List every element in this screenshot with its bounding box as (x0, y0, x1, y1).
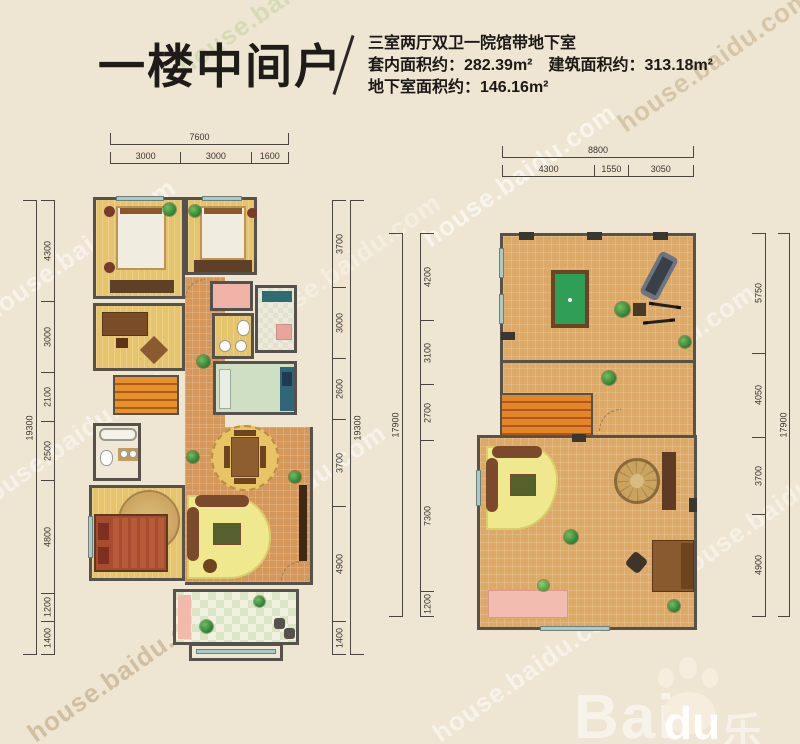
dim-right-segments-first-floor: 3700 3000 2600 3700 4900 1400 (332, 200, 346, 655)
column (689, 498, 697, 512)
dim-seg: 7600 (110, 133, 288, 145)
billiard-table (551, 270, 589, 328)
fridge (282, 372, 292, 386)
dim-seg: 19300 (23, 200, 37, 654)
dim-seg: 3700 (332, 200, 346, 287)
dim-left-overall-basement: 17900 (389, 233, 403, 617)
pillow (98, 547, 109, 564)
balcony (173, 589, 299, 645)
bookshelf (681, 543, 693, 589)
treadmill (639, 250, 679, 302)
sofa-back (195, 495, 249, 507)
sofa-back (486, 458, 498, 512)
plant-pot (633, 303, 646, 316)
dim-seg: 3700 (752, 437, 766, 514)
dim-left-segments-basement: 4200 3100 2700 7300 1200 (420, 233, 434, 617)
sink-icon (129, 450, 137, 458)
sofa-set (187, 495, 271, 579)
dining-table (231, 437, 259, 477)
study (93, 303, 185, 371)
bathroom-master (93, 423, 141, 481)
dim-seg: 4300 (41, 200, 55, 301)
billiard-ball (568, 298, 572, 302)
blanket (113, 518, 164, 568)
dim-left-segments-first-floor: 4300 3000 2100 2500 4800 1200 1400 (41, 200, 55, 655)
pillow (98, 523, 109, 540)
dim-seg: 1400 (332, 621, 346, 654)
dim-seg: 19300 (350, 200, 364, 654)
column (653, 232, 668, 240)
dim-left-overall-first-floor: 19300 (23, 200, 37, 655)
dim-seg: 1200 (41, 593, 55, 621)
column (519, 232, 534, 240)
washing-machine (276, 324, 292, 340)
desk (102, 312, 148, 336)
window (196, 649, 276, 654)
plant-icon (163, 203, 176, 216)
chair (274, 618, 285, 629)
page-title: 一楼中间户 (98, 28, 343, 97)
bathroom-pink (210, 281, 253, 311)
plant-icon (564, 530, 578, 544)
window (202, 196, 242, 201)
plant-icon (668, 600, 680, 612)
master-bed (94, 514, 168, 572)
master-bedroom (89, 485, 185, 581)
family-room (477, 435, 697, 630)
round-rug (614, 458, 660, 504)
dim-top-overall-basement: 8800 (502, 146, 694, 158)
plant-icon (254, 596, 265, 607)
cabinet (662, 452, 676, 510)
dim-right-overall-basement: 17900 (778, 233, 790, 617)
toilet-icon (237, 320, 250, 336)
dim-seg: 2500 (41, 421, 55, 480)
dresser (110, 280, 174, 293)
basement-plan (477, 233, 699, 630)
plant-icon (615, 302, 630, 317)
plant-icon (289, 471, 301, 483)
double-bed (116, 206, 166, 270)
dim-top-segments-basement: 4300 1550 3050 (502, 165, 694, 177)
desc-inner-area: 套内面积约：282.39m² (368, 57, 533, 74)
headboard (120, 208, 162, 214)
dim-seg: 2700 (420, 384, 434, 440)
dim-seg: 17900 (778, 233, 790, 616)
bay-window (189, 643, 283, 661)
kitchen-counter (219, 369, 231, 409)
nightstand (247, 208, 257, 218)
bathroom-tiled (255, 285, 297, 353)
dim-seg: 3000 (332, 287, 346, 358)
dim-seg: 2100 (41, 372, 55, 421)
dim-seg: 2600 (332, 358, 346, 419)
dim-seg: 8800 (502, 146, 693, 158)
dim-seg: 4900 (332, 506, 346, 621)
dim-seg: 1200 (420, 591, 434, 616)
dim-seg: 1400 (41, 621, 55, 654)
bathtub (99, 428, 137, 441)
desc-line-rooms: 三室两厅双卫一院馆带地下室 (368, 33, 713, 55)
sink-icon (120, 450, 128, 458)
plant-icon (200, 620, 213, 633)
desc-basement-area: 地下室面积约：146.16m² (368, 77, 713, 99)
barbell-icon (649, 302, 681, 309)
dim-seg: 3000 (41, 301, 55, 372)
plant-icon (189, 205, 201, 217)
unit-description: 三室两厅双卫一院馆带地下室 套内面积约：282.39m²建筑面积约：313.18… (368, 33, 713, 99)
dim-seg: 3100 (420, 320, 434, 384)
plant-icon (538, 580, 549, 591)
headboard (204, 208, 242, 214)
staircase (113, 375, 179, 415)
logo-leju-text: 乐居 (722, 700, 800, 744)
living-dining-room (185, 427, 313, 585)
floorplan-page: house.baidu.com house.baidu.com house.ba… (0, 0, 800, 744)
window (116, 196, 164, 201)
chair (625, 551, 649, 575)
dim-top-overall-first-floor: 7600 (110, 133, 289, 145)
dim-seg: 5750 (752, 233, 766, 353)
flower-bed (178, 595, 191, 639)
baidu-leju-logo: Bai du 乐居 (570, 652, 800, 744)
coffee-rug (510, 474, 536, 496)
toilet-icon (100, 450, 113, 466)
rug (140, 336, 168, 364)
dim-seg: 7300 (420, 440, 434, 591)
double-bed (200, 206, 246, 260)
dim-right-segments-basement: 5750 4050 3700 4900 (752, 233, 766, 617)
chair (234, 478, 256, 484)
dim-seg: 4800 (41, 480, 55, 593)
sink-icon (235, 340, 247, 352)
window (88, 516, 93, 558)
side-table (203, 559, 217, 573)
column (572, 434, 586, 442)
dim-seg: 17900 (389, 233, 403, 616)
recreation-room (500, 233, 696, 363)
sink-icon (219, 340, 231, 352)
window (499, 294, 504, 324)
column (587, 232, 602, 240)
chair (260, 446, 266, 468)
first-floor-plan (85, 195, 320, 665)
window (499, 248, 504, 278)
dim-seg: 3700 (332, 419, 346, 506)
light-well (488, 590, 568, 618)
wardrobe (194, 260, 252, 272)
rug-center (630, 474, 644, 488)
plant-icon (679, 336, 691, 348)
desc-line-areas: 套内面积约：282.39m²建筑面积约：313.18m² (368, 55, 713, 77)
tv-cabinet (299, 485, 307, 561)
nightstand (104, 262, 115, 273)
plant-icon (602, 371, 616, 385)
dim-seg: 4200 (420, 233, 434, 320)
plant-icon (197, 355, 210, 368)
dim-right-overall-first-floor: 19300 (350, 200, 364, 655)
nightstand (104, 206, 115, 217)
coffee-rug (213, 523, 241, 545)
dim-seg: 4050 (752, 353, 766, 437)
column (501, 332, 515, 340)
door-arc (281, 561, 301, 581)
plant-icon (187, 451, 199, 463)
dim-top-segments-first-floor: 3000 3000 1600 (110, 152, 289, 164)
staircase (500, 393, 593, 437)
barbell-icon (643, 318, 675, 324)
chair (224, 446, 230, 468)
toilet-room (212, 313, 254, 359)
window (540, 626, 610, 631)
desc-build-area: 建筑面积约：313.18m² (549, 57, 714, 74)
kitchen (213, 361, 297, 415)
chair (234, 430, 256, 436)
chair (116, 338, 128, 348)
sofa-back (187, 507, 199, 561)
sofa-set (486, 446, 558, 530)
dim-seg: 4900 (752, 514, 766, 616)
vanity (262, 291, 292, 302)
desk (652, 540, 694, 592)
logo-du-text: du (664, 696, 720, 744)
sofa-back (492, 446, 542, 458)
dim-seg: 3050 (628, 165, 693, 177)
chair (284, 628, 295, 639)
window (476, 470, 481, 506)
dim-seg: 1600 (251, 152, 288, 164)
